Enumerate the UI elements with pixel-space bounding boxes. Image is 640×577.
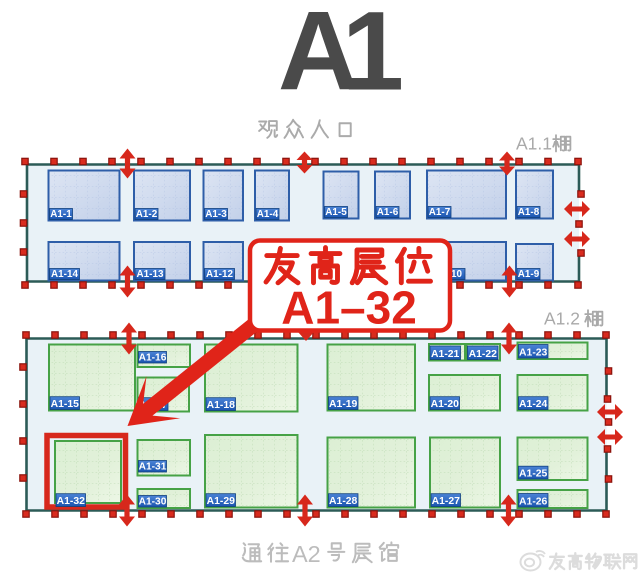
- svg-text:A1-4: A1-4: [257, 209, 279, 220]
- svg-text:A1-18: A1-18: [207, 400, 236, 411]
- svg-text:A1-28: A1-28: [329, 496, 358, 507]
- svg-text:A1-15: A1-15: [51, 399, 80, 410]
- svg-text:A1-3: A1-3: [205, 209, 227, 220]
- svg-text:A1-31: A1-31: [139, 461, 167, 472]
- svg-text:A1.1: A1.1: [516, 134, 552, 154]
- svg-text:A1-32: A1-32: [57, 496, 86, 507]
- svg-text:A1-30: A1-30: [139, 496, 167, 507]
- svg-text:A1-27: A1-27: [432, 496, 461, 507]
- svg-text:A1-6: A1-6: [377, 207, 399, 218]
- svg-text:A1-5: A1-5: [325, 207, 347, 218]
- svg-text:A1-21: A1-21: [431, 349, 460, 360]
- svg-text:A1-13: A1-13: [137, 269, 164, 280]
- svg-text:A1-14: A1-14: [51, 269, 78, 280]
- svg-text:A2: A2: [292, 541, 321, 567]
- svg-text:A1-1: A1-1: [50, 209, 72, 220]
- svg-text:A1-19: A1-19: [329, 399, 358, 410]
- svg-text:A1-12: A1-12: [206, 269, 233, 280]
- svg-text:A1-9: A1-9: [518, 269, 540, 280]
- svg-text:A1-24: A1-24: [519, 399, 548, 410]
- svg-text:A1-29: A1-29: [207, 496, 236, 507]
- svg-text:A1-20: A1-20: [431, 399, 460, 410]
- svg-text:A1-7: A1-7: [429, 207, 451, 218]
- svg-text:A1-22: A1-22: [469, 349, 498, 360]
- svg-text:A1-26: A1-26: [519, 496, 548, 507]
- svg-text:A1–32: A1–32: [281, 282, 417, 334]
- svg-text:A1-23: A1-23: [519, 347, 548, 358]
- svg-text:A1-16: A1-16: [139, 352, 167, 363]
- svg-text:A1: A1: [278, 0, 402, 114]
- svg-text:A1-25: A1-25: [519, 468, 548, 479]
- svg-text:A1-2: A1-2: [136, 209, 158, 220]
- svg-text:A1-8: A1-8: [518, 207, 540, 218]
- svg-text:A1.2: A1.2: [544, 309, 580, 329]
